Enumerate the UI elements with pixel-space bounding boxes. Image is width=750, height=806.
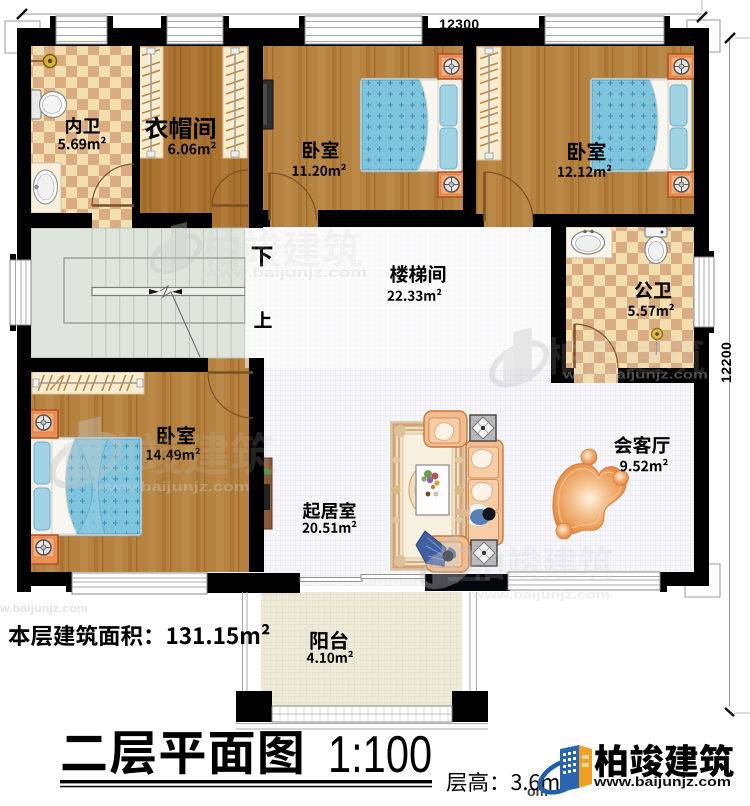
svg-text:www.baijunjz.com: www.baijunjz.com [471,588,610,602]
svg-text:1:100: 1:100 [328,725,432,784]
svg-text:www.baijunjz.com: www.baijunjz.com [593,774,731,789]
svg-text:w.baijunjz.com: w.baijunjz.com [0,603,88,615]
svg-text:www.baijunjz.com: www.baijunjz.com [562,368,708,382]
svg-text:www.baijunjz.com: www.baijunjz.com [203,265,367,280]
svg-text:12200: 12200 [718,342,734,383]
svg-text:www.baijunjz.com: www.baijunjz.com [93,479,250,494]
svg-text:12300: 12300 [439,16,479,32]
